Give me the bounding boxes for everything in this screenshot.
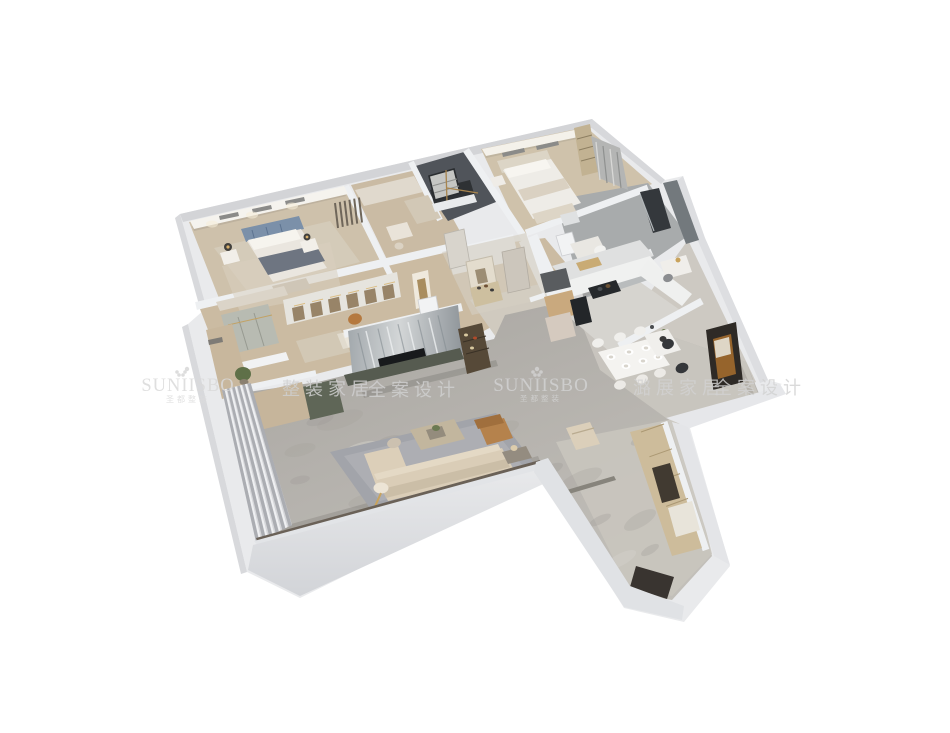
svg-text:整装家居: 整装家居 — [282, 379, 374, 399]
svg-text:全案设计: 全案设计 — [714, 378, 806, 398]
svg-text:潞展家居: 潞展家居 — [633, 378, 725, 398]
svg-text:圣都整装: 圣都整装 — [520, 393, 562, 403]
svg-text:圣都整装: 圣都整装 — [166, 394, 210, 404]
svg-text:SUNIISBO: SUNIISBO — [493, 375, 589, 396]
svg-text:全案设计: 全案设计 — [368, 380, 460, 400]
svg-text:SUNIISBO: SUNIISBO — [141, 376, 234, 396]
